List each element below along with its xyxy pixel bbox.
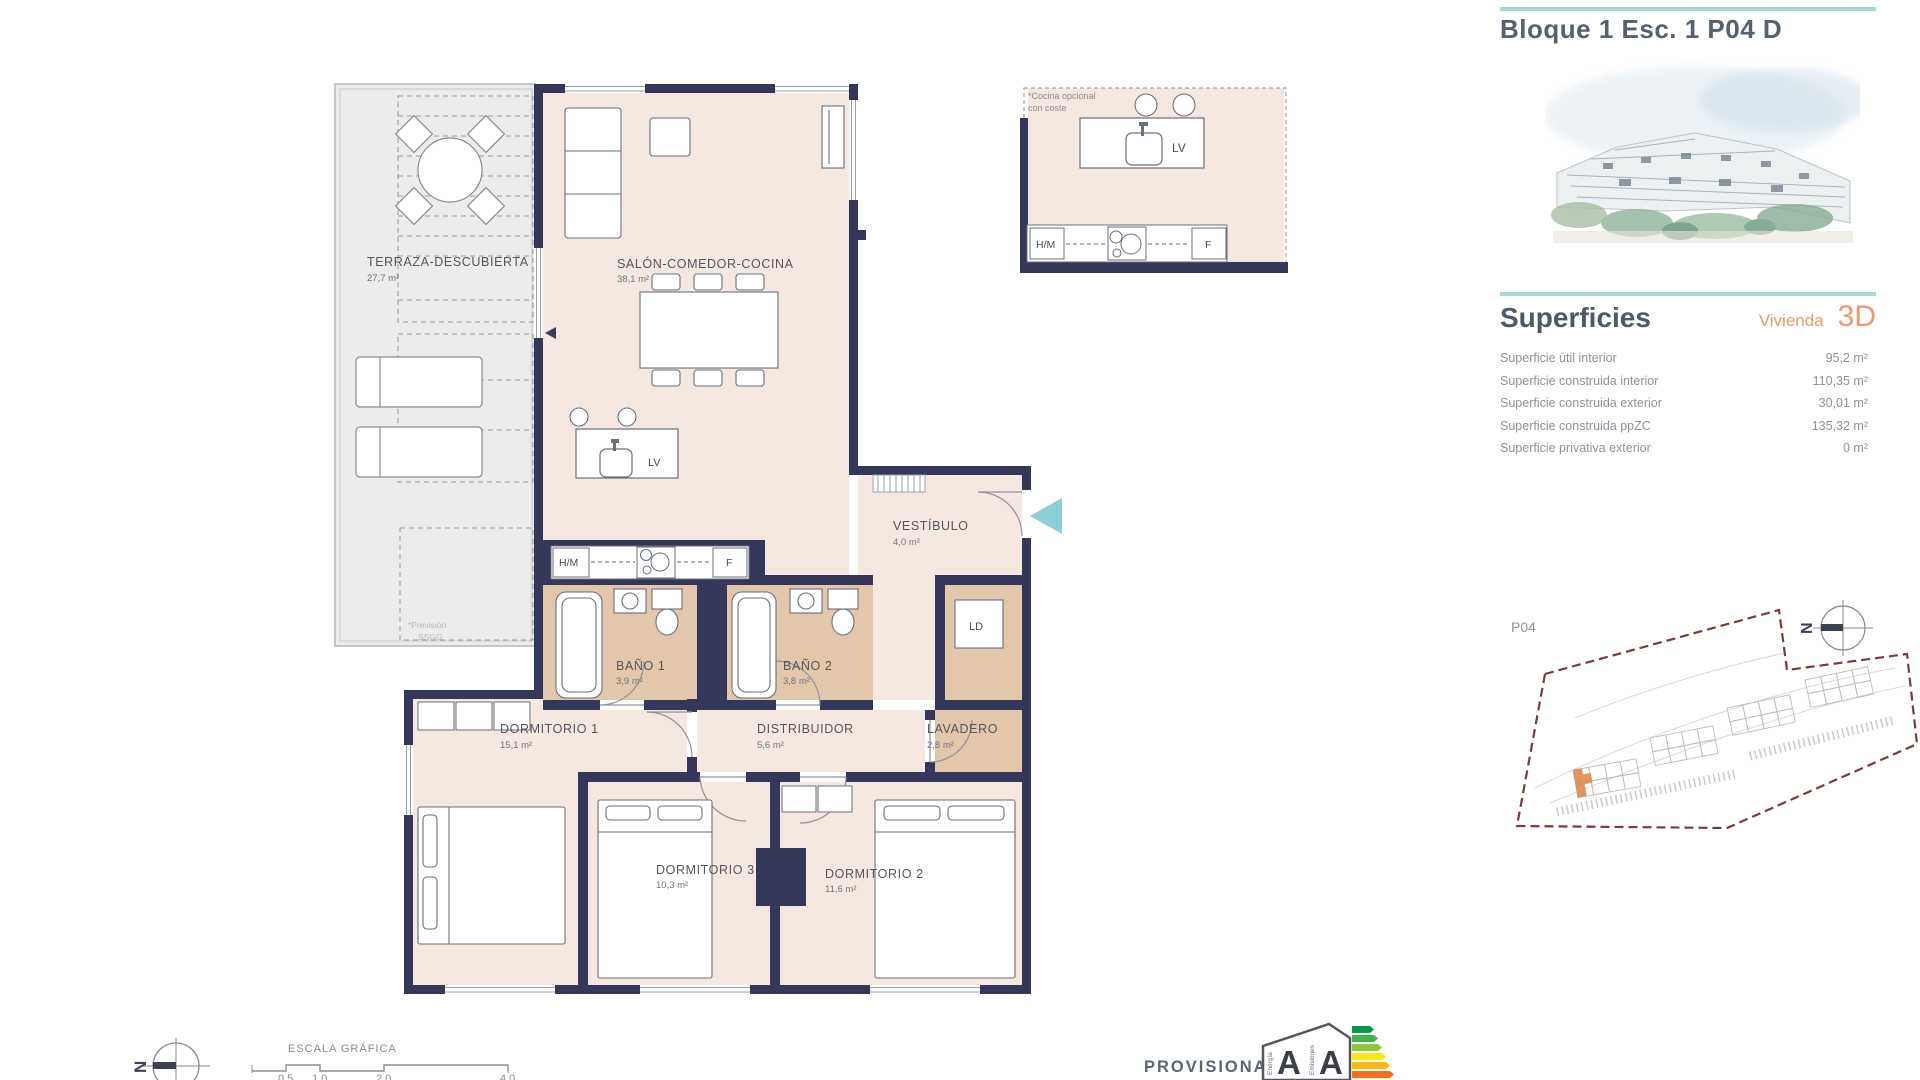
row-value: 135,32 m²	[1812, 415, 1868, 438]
energy-rating-label: Energía A Emisiones A	[1253, 1016, 1413, 1080]
room-area-lavadero: 2,8 m²	[927, 740, 954, 751]
kitchen-counter: H/M F	[551, 546, 749, 579]
room-label-salon: SALÓN-COMEDOR-COCINA	[617, 256, 794, 271]
table-row: Superficie construida ppZC 135,32 m²	[1500, 415, 1868, 438]
emissions-caption: Emisiones	[1309, 1044, 1316, 1075]
row-label: Superficie útil interior	[1500, 347, 1617, 370]
bed3-icon	[598, 800, 712, 978]
building-rendering	[1545, 55, 1860, 285]
dishwasher-label: LV	[648, 457, 661, 469]
scale-tick: 0,5	[278, 1073, 293, 1080]
superficies-header: Superficies Vivienda 3D	[1500, 300, 1876, 334]
page-title: Bloque 1 Esc. 1 P04 D	[1500, 14, 1900, 45]
table-row: Superficie construida interior 110,35 m²	[1500, 370, 1868, 393]
terrace-note-line2: SSGG	[418, 632, 443, 642]
sink-icon	[600, 449, 632, 477]
room-label-dormitorio1: DORMITORIO 1	[500, 722, 599, 736]
row-value: 95,2 m²	[1826, 347, 1868, 370]
table-row: Superficie privativa exterior 0 m²	[1500, 437, 1868, 460]
vent-shaft	[873, 475, 925, 492]
terrace: *Previsión SSGG	[335, 84, 535, 646]
scale-bar: ESCALA GRÁFICA 0,5 1,0 2,0 4,0	[238, 1038, 538, 1080]
dwelling-label: Vivienda	[1759, 311, 1824, 331]
superficies-heading: Superficies	[1500, 302, 1651, 334]
row-value: 0 m²	[1843, 437, 1868, 460]
kitchen-detail: *Cocina opcional con coste LV H/M F	[1020, 88, 1288, 273]
row-label: Superficie construida ppZC	[1500, 415, 1651, 438]
room-label-distribuidor: DISTRIBUIDOR	[757, 722, 854, 736]
energy-caption: Energía	[1267, 1052, 1274, 1075]
site-compass-icon: N	[1799, 600, 1873, 656]
room-label-terraza: TERRAZA-DESCUBIERTA	[367, 255, 529, 269]
plan-north-label: N	[131, 1061, 150, 1073]
site-floor-label: P04	[1511, 619, 1536, 635]
kitchen-note-line2: con coste	[1028, 103, 1067, 113]
energy-bars-icon	[1352, 1026, 1398, 1080]
room-area-terraza: 27,7 m²	[367, 273, 399, 284]
site-plan: P04 N	[1495, 598, 1920, 838]
scale-heading: ESCALA GRÁFICA	[288, 1042, 397, 1055]
detail-lv-label: LV	[1172, 141, 1186, 155]
laundry-unit: LD	[955, 600, 1003, 648]
floor-plan: *Previsión SSGG	[0, 0, 1490, 1080]
table-row: Superficie útil interior 95,2 m²	[1500, 347, 1868, 370]
superficies-table: Superficie útil interior 95,2 m² Superfi…	[1500, 347, 1868, 460]
row-label: Superficie construida exterior	[1500, 392, 1662, 415]
energy-letter: A	[1277, 1044, 1301, 1080]
accent-line-superficies	[1500, 292, 1876, 296]
room-area-distribuidor: 5,6 m²	[757, 740, 784, 751]
kitchen-note-line1: *Cocina opcional	[1028, 91, 1096, 101]
row-label: Superficie construida interior	[1500, 370, 1658, 393]
site-boundary	[1517, 610, 1917, 828]
room-area-bano2: 3,8 m²	[783, 676, 810, 687]
bed1-icon	[418, 807, 565, 944]
room-area-bano1: 3,9 m²	[616, 676, 643, 687]
room-label-vestibulo: VESTÍBULO	[893, 518, 969, 533]
room-area-vestibulo: 4,0 m²	[893, 537, 920, 548]
row-value: 30,01 m²	[1819, 392, 1868, 415]
detail-sink-icon	[1126, 133, 1162, 165]
fridge-label: F	[726, 557, 732, 569]
table-row: Superficie construida exterior 30,01 m²	[1500, 392, 1868, 415]
room-area-dormitorio2: 11,6 m²	[825, 884, 857, 895]
scale-tick: 2,0	[376, 1073, 391, 1080]
tv-unit-icon	[822, 106, 844, 168]
room-label-bano1: BAÑO 1	[616, 659, 665, 673]
detail-f-label: F	[1205, 239, 1211, 251]
entry-arrow-icon	[1030, 498, 1062, 534]
bed2-icon	[875, 800, 1015, 978]
terrace-note-line1: *Previsión	[408, 620, 447, 630]
ld-label: LD	[969, 621, 983, 633]
hm-label: H/M	[559, 557, 578, 569]
dwelling-type: 3D	[1838, 300, 1876, 334]
site-buildings	[1573, 667, 1873, 798]
row-value: 110,35 m²	[1813, 370, 1868, 393]
row-label: Superficie privativa exterior	[1500, 437, 1651, 460]
room-label-bano2: BAÑO 2	[783, 659, 832, 673]
room-label-dormitorio2: DORMITORIO 2	[825, 867, 924, 881]
site-north-label: N	[1799, 622, 1816, 634]
plan-compass-icon: N	[128, 1030, 228, 1080]
accent-line-top	[1500, 7, 1876, 11]
room-label-lavadero: LAVADERO	[927, 722, 998, 736]
room-area-dormitorio3: 10,3 m²	[656, 880, 688, 891]
scale-tick: 1,0	[312, 1073, 327, 1080]
scale-tick: 4,0	[500, 1073, 515, 1080]
room-area-dormitorio1: 15,1 m²	[500, 740, 532, 751]
room-area-salon: 38,1 m²	[617, 274, 649, 285]
site-parking	[1557, 720, 1895, 812]
emissions-letter: A	[1319, 1044, 1343, 1080]
detail-hm-label: H/M	[1036, 239, 1055, 251]
room-label-dormitorio3: DORMITORIO 3	[656, 863, 755, 877]
site-highlighted-unit	[1573, 767, 1595, 798]
